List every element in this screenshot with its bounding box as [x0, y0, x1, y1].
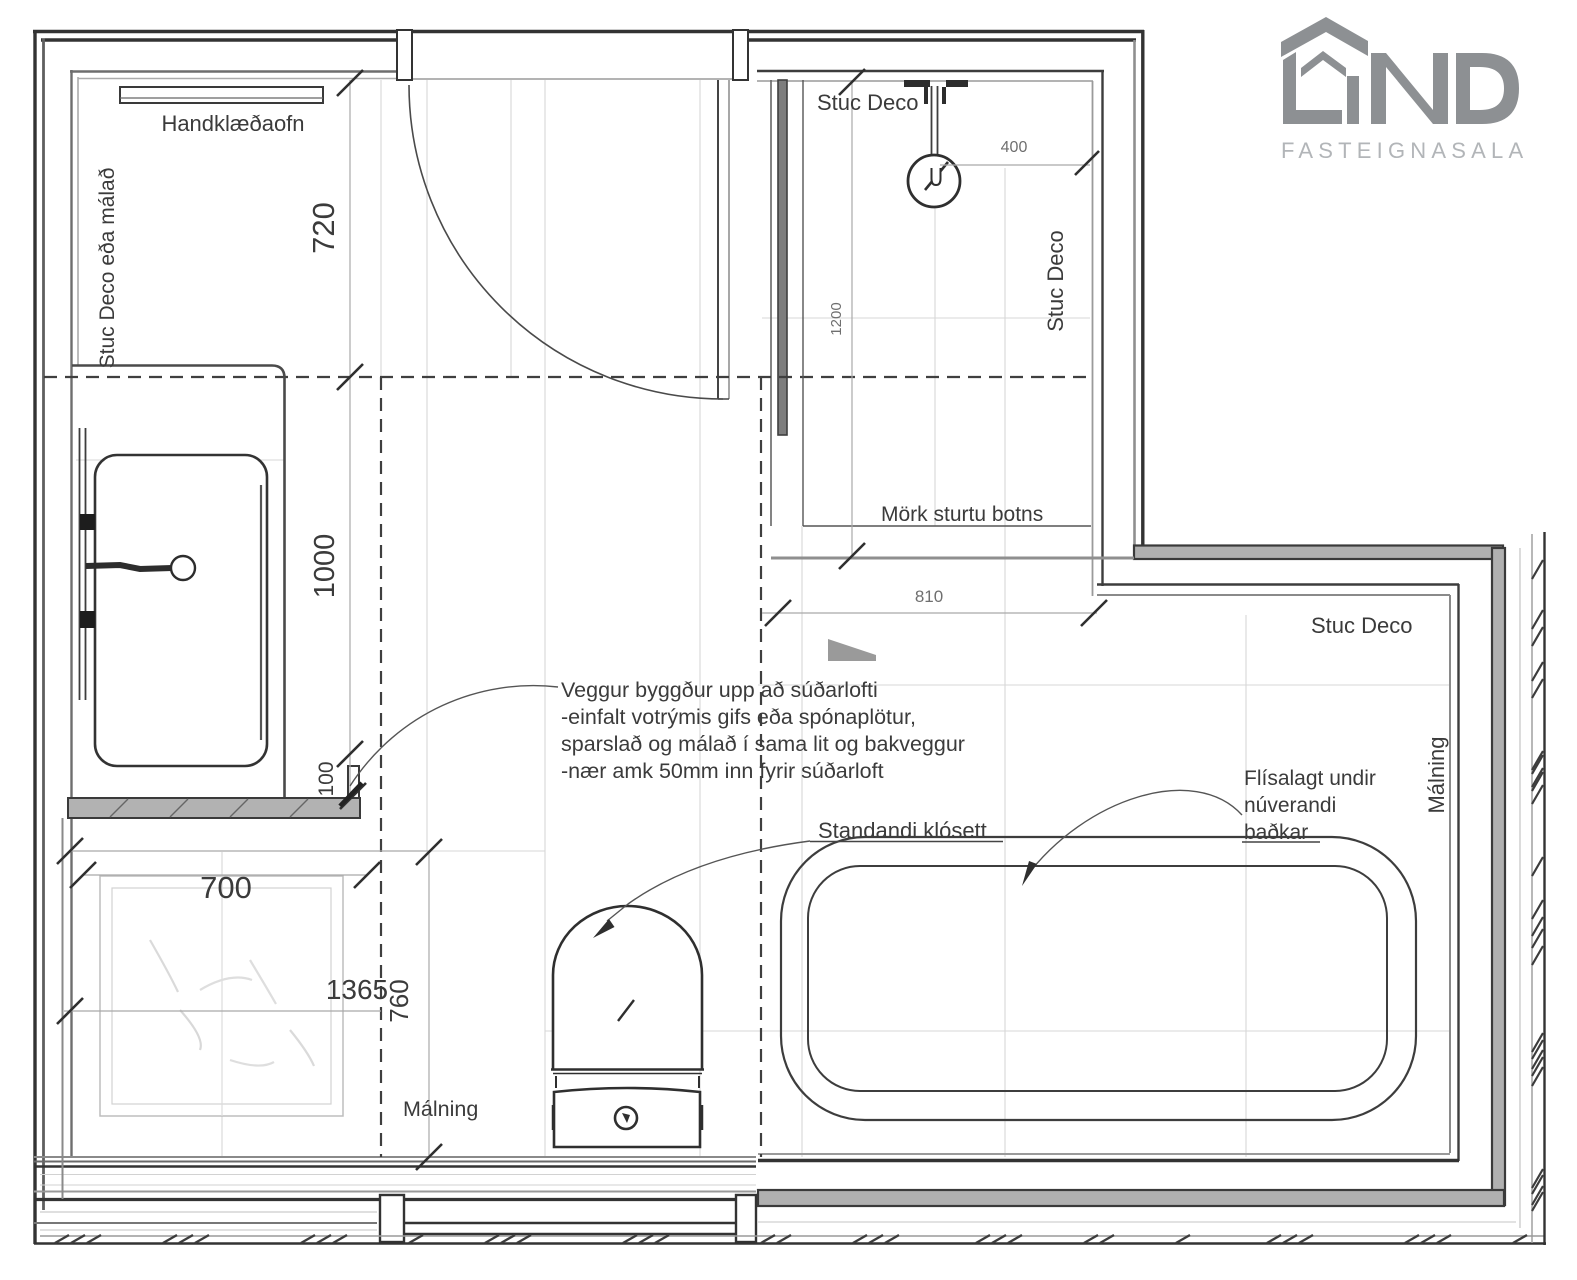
- svg-text:Veggur byggður upp að súðarlof: Veggur byggður upp að súðarlofti: [561, 678, 878, 702]
- svg-text:720: 720: [306, 202, 341, 254]
- svg-text:Málning: Málning: [403, 1097, 478, 1121]
- svg-text:Stuc Deco: Stuc Deco: [1311, 613, 1413, 638]
- svg-text:100: 100: [315, 761, 338, 796]
- svg-text:baðkar: baðkar: [1244, 821, 1308, 844]
- svg-text:Flísalagt undir: Flísalagt undir: [1244, 767, 1376, 790]
- svg-text:1365: 1365: [326, 974, 388, 1005]
- svg-text:Mörk sturtu botns: Mörk sturtu botns: [881, 503, 1043, 526]
- svg-text:Stuc Deco eða málað: Stuc Deco eða málað: [96, 168, 119, 369]
- svg-text:-nær amk 50mm inn fyrir súðarl: -nær amk 50mm inn fyrir súðarloft: [561, 759, 884, 783]
- svg-text:400: 400: [1001, 139, 1028, 156]
- svg-text:1000: 1000: [309, 534, 341, 599]
- svg-text:Handklæðaofn: Handklæðaofn: [161, 111, 304, 136]
- svg-text:1200: 1200: [828, 302, 845, 335]
- svg-text:810: 810: [915, 587, 943, 606]
- svg-text:Stuc Deco: Stuc Deco: [817, 90, 919, 115]
- svg-text:núverandi: núverandi: [1244, 794, 1336, 817]
- svg-text:700: 700: [200, 870, 252, 905]
- svg-text:Standandi klósett: Standandi klósett: [818, 818, 987, 843]
- svg-text:Málning: Málning: [1424, 736, 1449, 813]
- svg-text:760: 760: [384, 979, 414, 1022]
- svg-text:Stuc Deco: Stuc Deco: [1043, 230, 1068, 332]
- svg-text:-einfalt votrýmis gifs eða spó: -einfalt votrýmis gifs eða spónaplötur,: [561, 705, 916, 729]
- svg-text:sparslað og málað í sama lit o: sparslað og málað í sama lit og bakveggu…: [561, 732, 965, 756]
- svg-text:FASTEIGNASALA: FASTEIGNASALA: [1281, 138, 1528, 163]
